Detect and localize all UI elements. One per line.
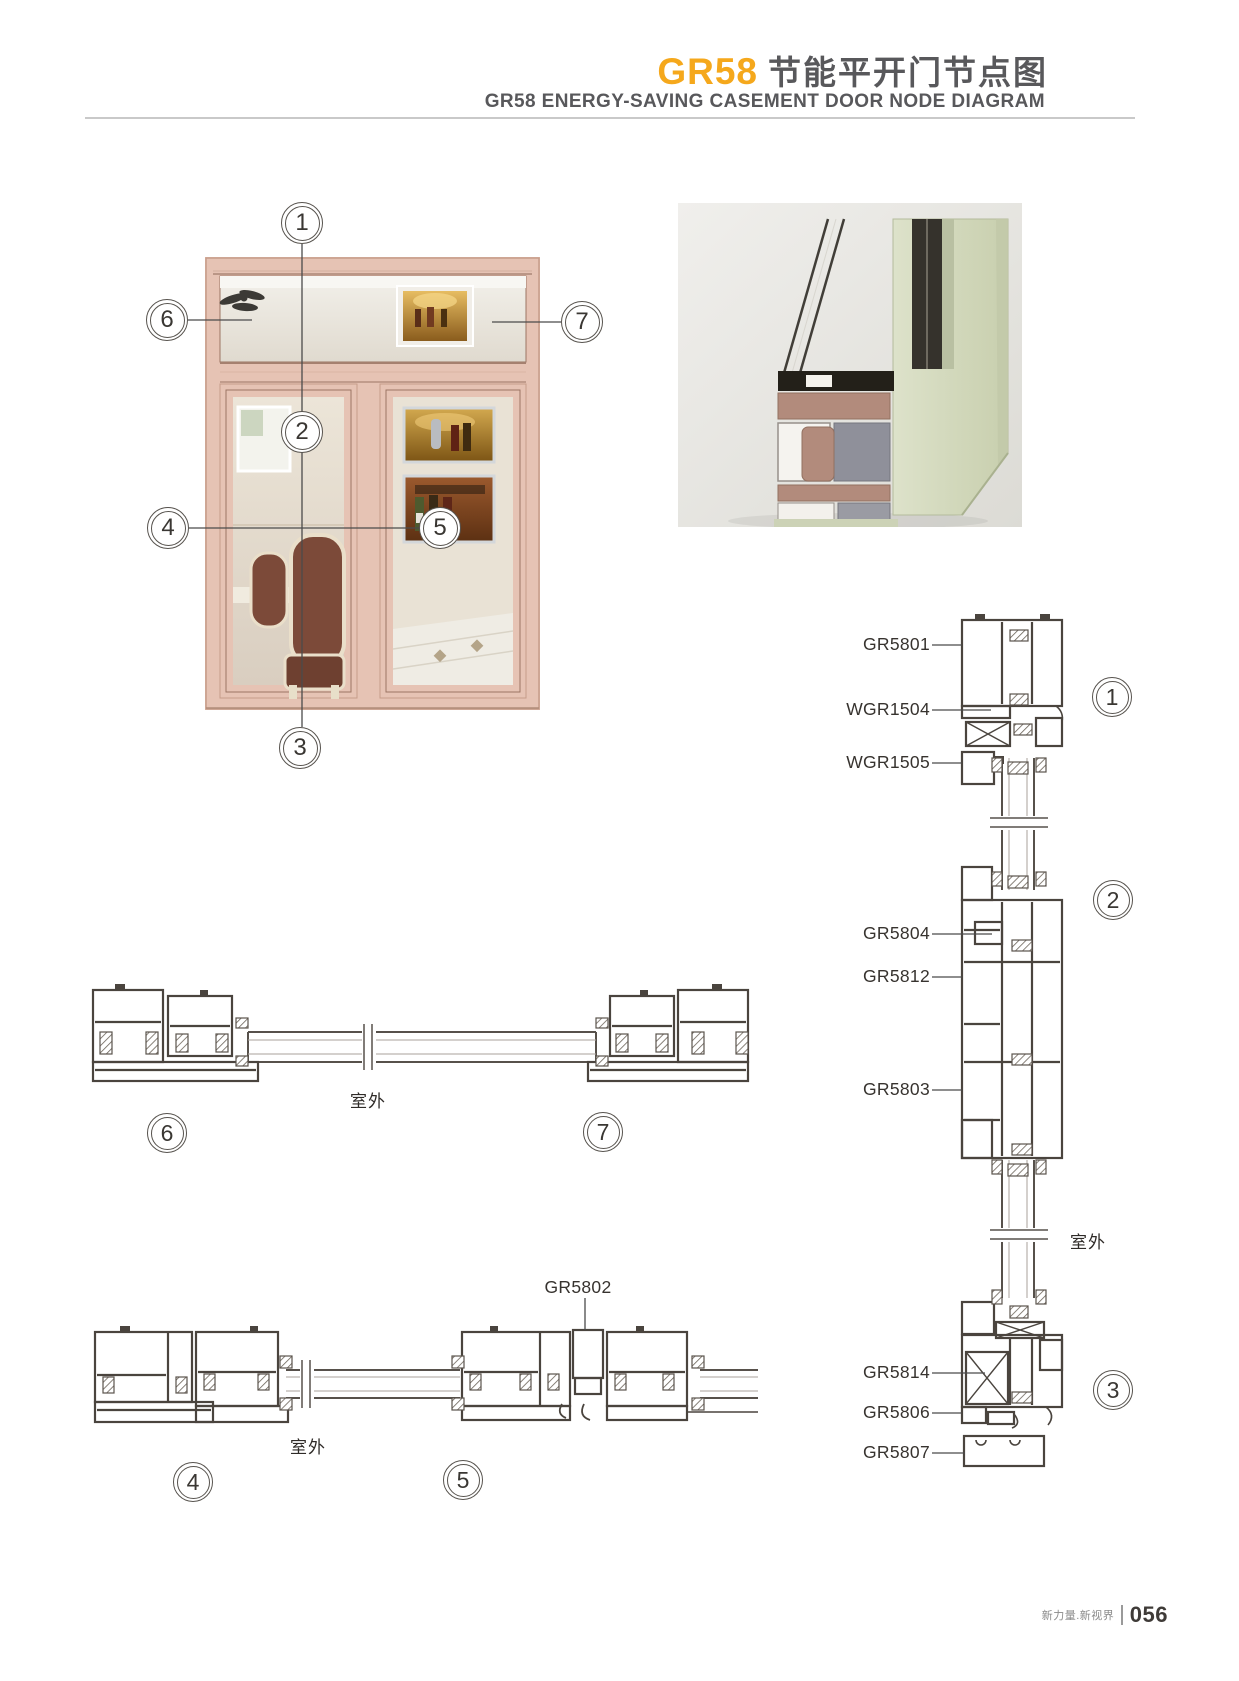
profile-label-gr5814: GR5814 (863, 1362, 930, 1383)
catalog-page: GR58 节能平开门节点图 GR58 ENERGY-SAVING CASEMEN… (0, 0, 1239, 1681)
page-footer: 新力量.新视界 056 (1042, 1602, 1168, 1628)
title-chinese: 节能平开门节点图 (768, 46, 1048, 94)
profile-label-gr5806: GR5806 (863, 1402, 930, 1423)
callout-photo-6: 6 (146, 299, 188, 341)
profile-3d-render (678, 203, 1022, 527)
page-number: 056 (1130, 1602, 1168, 1628)
profile-label-gr5802: GR5802 (540, 1277, 616, 1298)
callout-photo-2: 2 (281, 411, 323, 453)
profile-label-gr5812: GR5812 (863, 966, 930, 987)
profile-label-gr5807: GR5807 (863, 1442, 930, 1463)
door-photo-graphic (205, 257, 540, 710)
callout-photo-7: 7 (561, 301, 603, 343)
callout-photo-5: 5 (419, 507, 461, 549)
callout-photo-4: 4 (147, 507, 189, 549)
footer-slogan: 新力量.新视界 (1042, 1607, 1115, 1623)
callout-section-5: 5 (443, 1460, 483, 1500)
page-subtitle: GR58 ENERGY-SAVING CASEMENT DOOR NODE DI… (485, 91, 1045, 113)
callout-photo-3: 3 (279, 727, 321, 769)
callout-section-1: 1 (1092, 677, 1132, 717)
callout-section-6: 6 (147, 1113, 187, 1153)
mid-horizontal-section-drawing (85, 975, 760, 1150)
profile-label-gr5801: GR5801 (863, 634, 930, 655)
profile-label-gr5804: GR5804 (863, 923, 930, 944)
wine-niche (397, 286, 473, 346)
right-vertical-section-drawing (780, 575, 1200, 1475)
outdoor-label-right: 室外 (1070, 1228, 1106, 1253)
callout-photo-1: 1 (281, 202, 323, 244)
callout-section-2: 2 (1093, 880, 1133, 920)
page-title: GR58 节能平开门节点图 (657, 46, 1048, 94)
callout-section-3: 3 (1093, 1370, 1133, 1410)
outdoor-label-mid: 室外 (350, 1087, 386, 1112)
outdoor-label-bottom: 室外 (290, 1433, 326, 1458)
callout-section-4: 4 (173, 1462, 213, 1502)
profile-label-gr5803: GR5803 (863, 1079, 930, 1100)
title-series-code: GR58 (657, 51, 758, 93)
footer-divider (1121, 1605, 1123, 1625)
header-rule (85, 117, 1135, 119)
door-photo (205, 257, 540, 710)
profile-label-wgr1505: WGR1505 (846, 752, 930, 773)
callout-section-7: 7 (583, 1112, 623, 1152)
profile-label-wgr1504: WGR1504 (846, 699, 930, 720)
